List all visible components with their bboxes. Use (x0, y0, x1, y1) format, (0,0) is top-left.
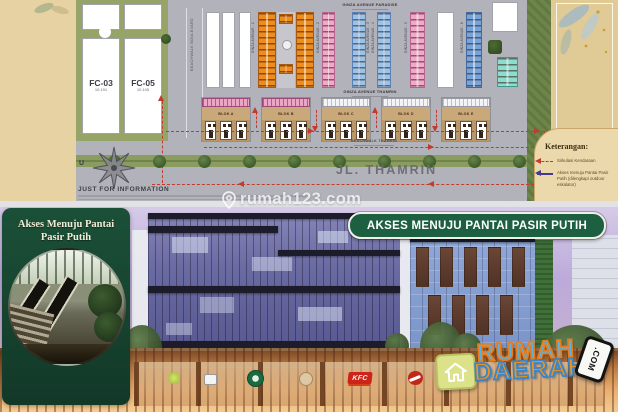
cul-de-sac (99, 26, 111, 38)
watermark: rumah123.com (222, 190, 361, 209)
circulation-line (256, 112, 257, 128)
rumah-daerah-logo: RUMAH DAERAH .COM (434, 333, 616, 412)
floor (10, 344, 124, 364)
shop-row-d: BLOK D (382, 98, 430, 141)
courtyard-unit (279, 14, 293, 24)
blok-b-label: BLOK B (278, 112, 294, 116)
avenue-label-4: GINZA AVENUE - 4 (371, 22, 375, 53)
beach-access-inset-panel: Akses Menuju Pantai Pasir Putih (2, 208, 130, 405)
awning (262, 98, 310, 107)
legend-title: Keterangan: (545, 142, 588, 151)
lot-block (206, 12, 220, 88)
circulation-line (436, 110, 437, 126)
pink-shop-strip (410, 12, 425, 88)
left-sand-margin (0, 0, 76, 201)
blue-shop-strip (352, 12, 366, 88)
leaf-decoration-top-right (546, 0, 618, 72)
lot-block (437, 12, 454, 88)
compass-rose-icon (92, 146, 136, 190)
circulation-line (166, 131, 544, 132)
avenue-label-5: GINZA AVENUE - 5 (404, 22, 408, 53)
circulation-arrow (372, 107, 378, 113)
courtyard-unit (279, 64, 293, 74)
legend-panel: Keterangan: Sirkulasi Kendaraan Akses me… (534, 128, 618, 201)
awning (322, 98, 370, 107)
facade-panel (440, 247, 453, 287)
com-badge: .COM (573, 335, 615, 384)
blok-a-label: BLOK A (218, 112, 233, 116)
shop-row-b: BLOK B (262, 98, 310, 141)
median-tree (513, 155, 526, 168)
com-badge-text: .COM (586, 346, 603, 372)
shop-row-a: BLOK A (202, 98, 250, 141)
median-tree (288, 155, 301, 168)
avenue-label-3: GINZA AVENUE - 3 (366, 22, 370, 53)
road-edge (186, 8, 187, 138)
facade-panel (416, 247, 429, 287)
blue-shop-strip (466, 12, 482, 88)
beach-access-banner: AKSES MENUJU PANTAI PASIR PUTIH (348, 212, 606, 239)
avenue-label-1: GINZA AVENUE - 1 (251, 22, 255, 53)
ginza-avenue-2-shops (296, 12, 314, 88)
facade-panel (488, 247, 501, 287)
escalator-photo (8, 248, 126, 366)
facade-panel (512, 247, 525, 287)
leaf-decoration-top-left (30, 0, 74, 22)
ginza-avenue-1-shops (258, 12, 276, 88)
thamrin-cluster-title: GINZA AVENUE THAMRIN (333, 89, 407, 94)
circulation-arrow (312, 126, 318, 132)
circulation-line (162, 101, 163, 183)
lot-block (492, 2, 518, 32)
paradise-title: GINZA AVENUE PARADISE (333, 2, 407, 7)
circulation-arrow (428, 181, 434, 187)
circulation-line (376, 112, 377, 128)
teal-shop-block (497, 57, 518, 87)
pink-shop-strip (322, 12, 335, 88)
courtyard-feature (282, 40, 292, 50)
north-indicator: U (79, 160, 84, 167)
facade-panel (464, 247, 477, 287)
shop-row-c: BLOK C (322, 98, 370, 141)
tower-band (148, 226, 278, 233)
bush (161, 34, 171, 44)
lot-block (222, 12, 235, 88)
blok-c-label: BLOK C (338, 112, 354, 116)
block-fc03: FC-03 10.191 (82, 38, 120, 134)
building-render: KFC AKSES MENUJU PANTAI PASIR PUTIH Akse… (0, 207, 618, 412)
kfc-logo: KFC (347, 372, 372, 384)
siteplan-flyer: FC-03 10.191 FC-05 10.105 BEACHWALK BOUL… (0, 0, 618, 201)
watermark-text: rumah123.com (240, 190, 361, 209)
paradise-subtitle-bar (352, 9, 388, 10)
circulation-line (316, 110, 317, 126)
park-square (488, 40, 502, 54)
tower-band (278, 250, 400, 256)
legend-beach-label: Akses menuju Pantai Pasir Putih (dilengk… (557, 170, 613, 188)
white-square-logo (204, 374, 217, 385)
circulation-line (152, 184, 544, 185)
kfc-text: KFC (352, 375, 368, 382)
legend-beach-arrow (535, 170, 541, 176)
blok-e-label: BLOK E (458, 112, 473, 116)
circulation-arrow (252, 107, 258, 113)
circulation-arrow (158, 95, 164, 101)
logo-word-daerah: DAERAH (473, 356, 587, 385)
starbucks-logo (247, 370, 264, 387)
median-tree (153, 155, 166, 168)
legend-vehicle-label: Sirkulasi Kendaraan (557, 158, 615, 164)
thamrin-subtitle-bar (352, 96, 388, 97)
median-tree (468, 155, 481, 168)
circulation-line (204, 147, 544, 148)
legend-vehicle-arrow (535, 158, 541, 164)
awning (442, 98, 490, 107)
circulation-arrow (428, 144, 434, 150)
avenue-label-2: GINZA AVENUE - 2 (316, 22, 320, 53)
circulation-arrow (432, 126, 438, 132)
beachwalk-boulevard-label: BEACHWALK BOULEVARD (190, 18, 194, 71)
house-icon (435, 353, 477, 391)
beachwalk-thamrin-label: BEACHWALK THAMRIN (344, 139, 404, 143)
inset-title: Akses Menuju Pantai Pasir Putih (7, 218, 125, 244)
just-for-information-note: JUST FOR INFORMATION (78, 186, 169, 193)
lime-circle-logo (168, 372, 180, 384)
facade-panel (476, 295, 489, 335)
circulation-arrow (534, 128, 540, 134)
tower-band (148, 286, 400, 293)
jl-thamrin-label: JL. THAMRIN (336, 163, 437, 177)
lot-block (239, 12, 251, 88)
blok-d-label: BLOK D (398, 112, 414, 116)
listing-collage: { "watermark": { "text": "rumah123.com" … (0, 0, 618, 412)
block-fc05: FC-05 10.105 (124, 38, 162, 134)
median-tree (198, 155, 211, 168)
blue-shop-strip (377, 12, 391, 88)
location-pin-icon (222, 191, 236, 209)
circulation-arrow (238, 181, 244, 187)
plant (94, 312, 124, 342)
facade-panel (500, 295, 513, 335)
fc-top-lot-2 (124, 4, 162, 30)
awning (382, 98, 430, 107)
shop-row-e: BLOK E (442, 98, 490, 141)
road-sub-bar (354, 145, 394, 146)
coffee-logo (299, 372, 313, 386)
fc05-area: 10.105 (131, 88, 155, 92)
awning (202, 98, 250, 107)
thamrin-median (76, 155, 527, 167)
fc03-area: 10.191 (89, 88, 113, 92)
pizza-hut-logo (408, 371, 423, 385)
banner-text: AKSES MENUJU PANTAI PASIR PUTIH (367, 220, 587, 232)
avenue-label-6: GINZA AVENUE - 6 (460, 22, 464, 53)
median-tree (243, 155, 256, 168)
